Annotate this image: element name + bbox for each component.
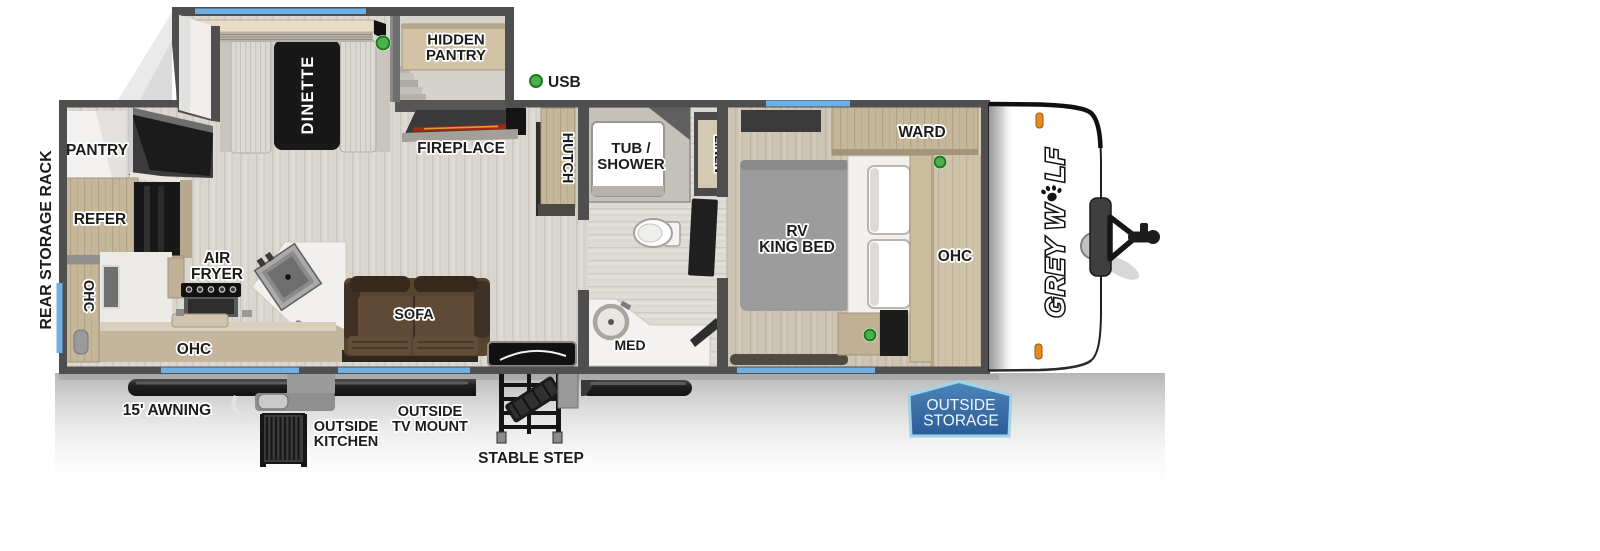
svg-text:TV MOUNT: TV MOUNT xyxy=(392,419,468,435)
svg-text:REFER: REFER xyxy=(74,211,127,228)
svg-text:KITCHEN: KITCHEN xyxy=(314,434,378,450)
svg-text:AIR: AIR xyxy=(204,250,231,267)
svg-text:STABLE STEP: STABLE STEP xyxy=(478,450,584,467)
svg-text:SOFA: SOFA xyxy=(394,307,434,323)
svg-text:GREY W: GREY W xyxy=(1040,203,1070,318)
svg-text:TUB /: TUB / xyxy=(611,140,651,157)
svg-text:STORAGE: STORAGE xyxy=(923,413,999,430)
svg-text:OUTSIDE: OUTSIDE xyxy=(927,397,996,414)
svg-text:OHC: OHC xyxy=(177,341,211,358)
svg-text:WARD: WARD xyxy=(898,124,945,141)
svg-text:KING BED: KING BED xyxy=(759,239,835,256)
svg-text:OHC: OHC xyxy=(80,280,96,313)
svg-text:FRYER: FRYER xyxy=(191,266,243,283)
svg-text:15' AWNING: 15' AWNING xyxy=(123,402,211,419)
svg-text:RV: RV xyxy=(786,223,808,240)
svg-text:DINETTE: DINETTE xyxy=(299,56,317,135)
svg-text:SHOWER: SHOWER xyxy=(597,156,665,173)
svg-text:PANTRY: PANTRY xyxy=(426,47,486,64)
svg-text:PANTRY: PANTRY xyxy=(66,142,129,159)
svg-text:MED: MED xyxy=(614,337,645,353)
svg-text:HIDDEN: HIDDEN xyxy=(427,32,485,49)
svg-text:FIREPLACE: FIREPLACE xyxy=(417,140,505,157)
svg-text:LF: LF xyxy=(1040,147,1070,182)
svg-text:OHC: OHC xyxy=(938,248,972,265)
svg-text:OUTSIDE: OUTSIDE xyxy=(398,404,463,420)
svg-text:USB: USB xyxy=(548,74,581,91)
svg-text:REAR STORAGE RACK: REAR STORAGE RACK xyxy=(38,150,55,330)
svg-text:HUTCH: HUTCH xyxy=(559,133,575,184)
svg-text:OUTSIDE: OUTSIDE xyxy=(314,419,379,435)
